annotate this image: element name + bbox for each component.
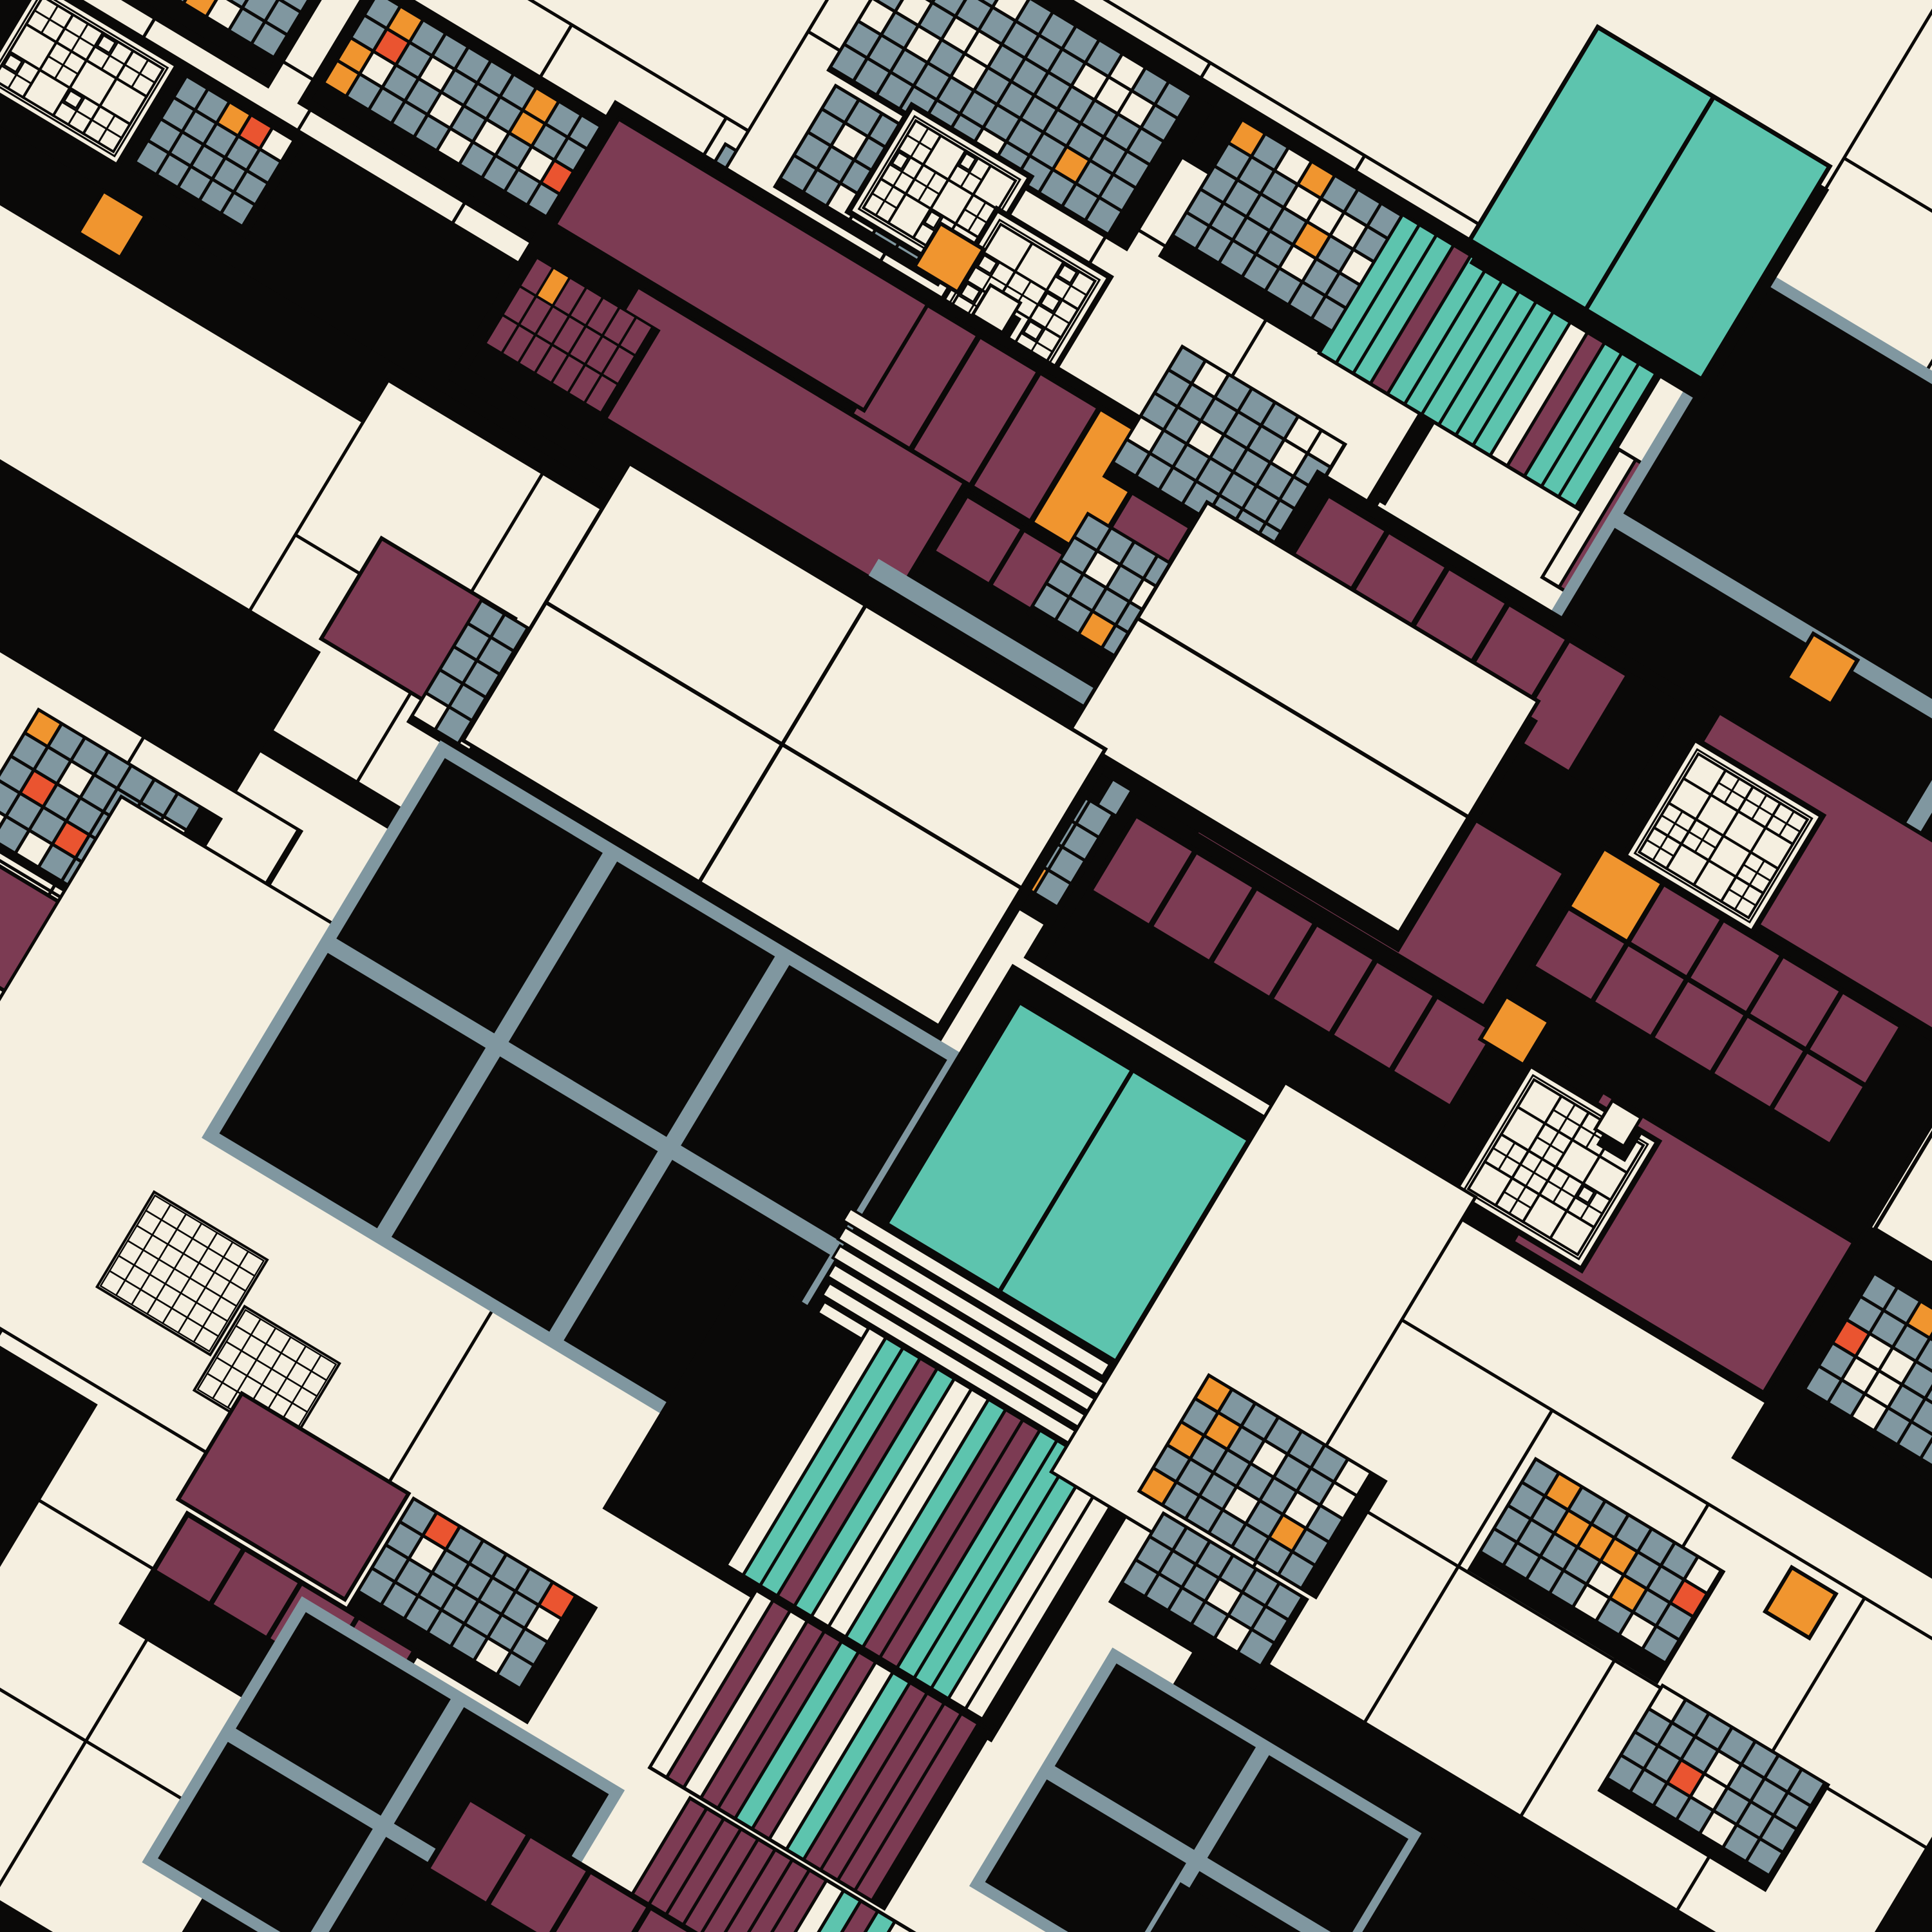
artwork-canvas: [0, 0, 1932, 1932]
generative-artwork: [0, 0, 1932, 1932]
rotated-frame: [0, 0, 1932, 1932]
artwork-page: { "artwork": { "title": "generative-isom…: [0, 0, 1932, 1932]
